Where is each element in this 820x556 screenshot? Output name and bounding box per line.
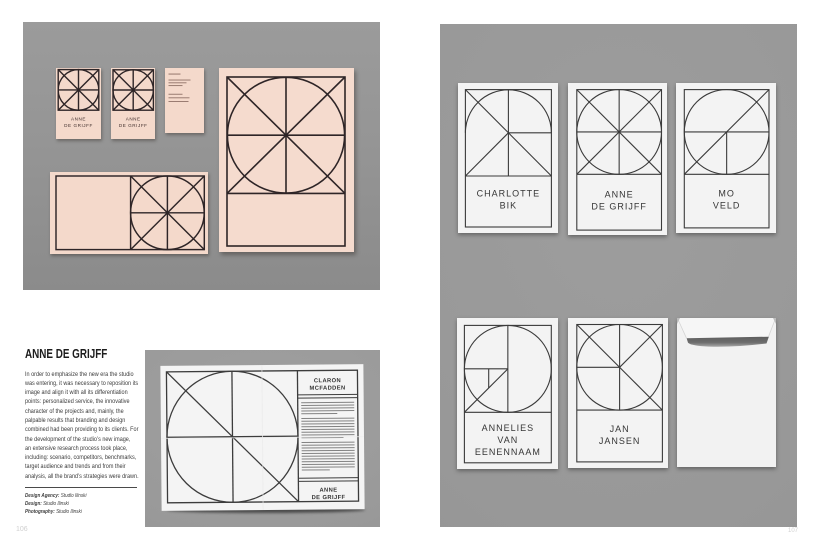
svg-text:ANNE: ANNE [71, 117, 86, 122]
svg-text:CHARLOTTE: CHARLOTTE [476, 189, 540, 199]
svg-text:JAN: JAN [609, 424, 629, 434]
svg-text:DE GRIJFF: DE GRIJFF [312, 495, 346, 501]
svg-text:DE GRIJFF: DE GRIJFF [64, 123, 93, 128]
svg-text:JANSEN: JANSEN [598, 436, 640, 446]
svg-text:VELD: VELD [713, 201, 741, 211]
svg-text:BIK: BIK [499, 201, 517, 211]
svg-text:EENENNAAM: EENENNAAM [474, 447, 540, 457]
svg-text:DE GRIJFF: DE GRIJFF [118, 123, 147, 128]
svg-text:ANNE: ANNE [604, 189, 633, 199]
svg-text:MO: MO [718, 189, 735, 199]
svg-text:MCFADDEN: MCFADDEN [310, 385, 346, 391]
svg-text:CLARON: CLARON [314, 378, 341, 384]
svg-text:VAN: VAN [497, 435, 518, 445]
svg-text:ANNE: ANNE [125, 116, 140, 121]
svg-text:DE GRIJFF: DE GRIJFF [591, 201, 647, 211]
svg-text:ANNE: ANNE [319, 488, 337, 494]
svg-text:ANNELIES: ANNELIES [481, 423, 534, 433]
